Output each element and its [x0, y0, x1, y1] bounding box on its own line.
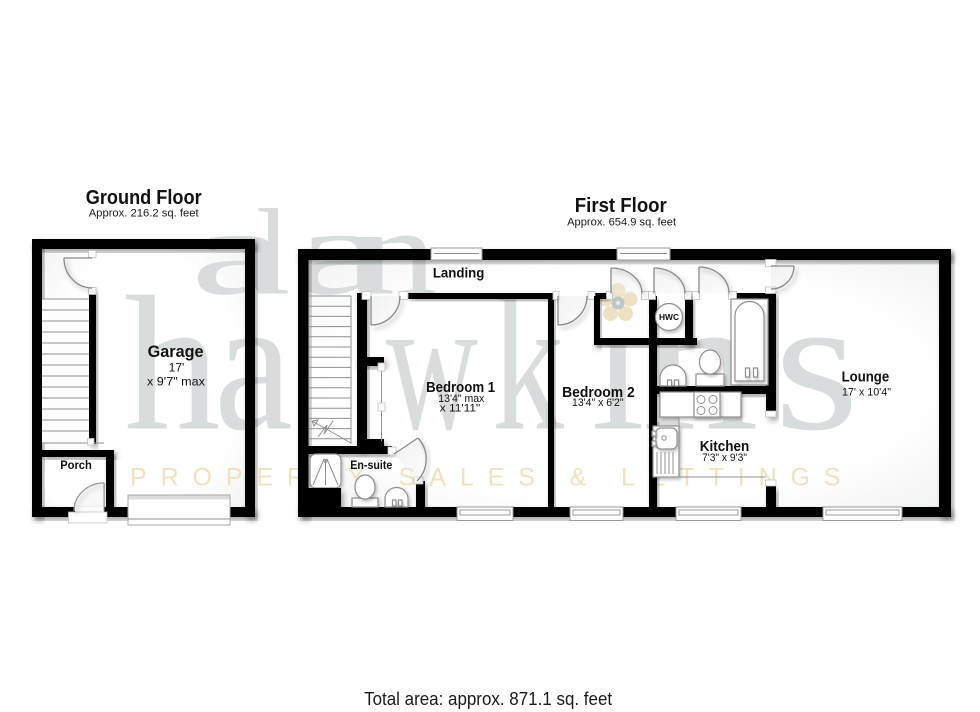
svg-text:Lounge: Lounge — [842, 370, 890, 386]
svg-text:Approx. 654.9 sq. feet: Approx. 654.9 sq. feet — [567, 217, 677, 229]
svg-text:En-suite: En-suite — [350, 460, 392, 472]
svg-text:17': 17' — [169, 361, 185, 375]
svg-text:Ground Floor: Ground Floor — [86, 187, 202, 209]
svg-text:Porch: Porch — [60, 460, 92, 472]
svg-text:13'4" x 6'2": 13'4" x 6'2" — [572, 397, 624, 409]
svg-text:HWC: HWC — [659, 313, 679, 322]
svg-text:x 9'7" max: x 9'7" max — [147, 375, 205, 389]
svg-text:x 11'11": x 11'11" — [440, 402, 481, 414]
svg-text:Garage: Garage — [148, 342, 204, 361]
svg-text:7'3" x 9'3": 7'3" x 9'3" — [702, 452, 747, 464]
svg-text:Approx. 216.2 sq. feet: Approx. 216.2 sq. feet — [89, 208, 200, 220]
svg-text:Total area: approx. 871.1 sq.: Total area: approx. 871.1 sq. feet — [364, 688, 612, 709]
svg-text:s: s — [774, 257, 859, 471]
svg-text:w: w — [386, 257, 478, 471]
svg-text:Landing: Landing — [433, 265, 485, 281]
svg-text:17' x 10'4": 17' x 10'4" — [842, 387, 891, 399]
svg-text:First Floor: First Floor — [575, 195, 667, 217]
